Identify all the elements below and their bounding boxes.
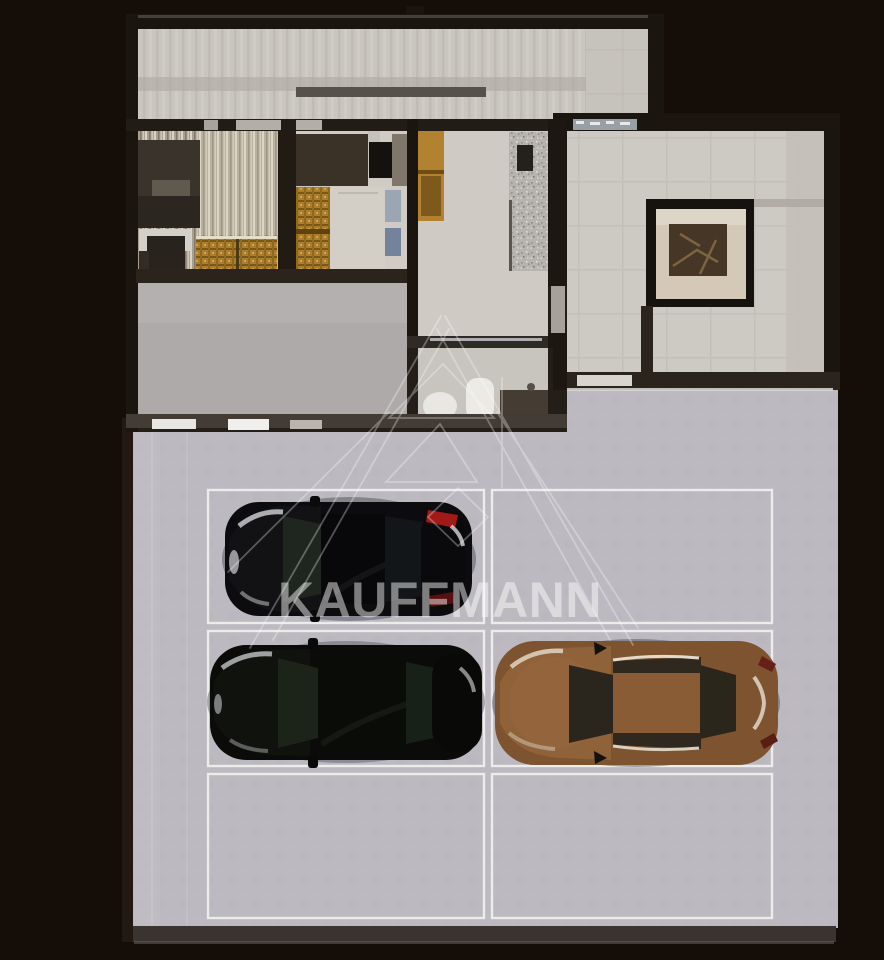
svg-text:KAUFFMANN: KAUFFMANN <box>278 572 602 628</box>
